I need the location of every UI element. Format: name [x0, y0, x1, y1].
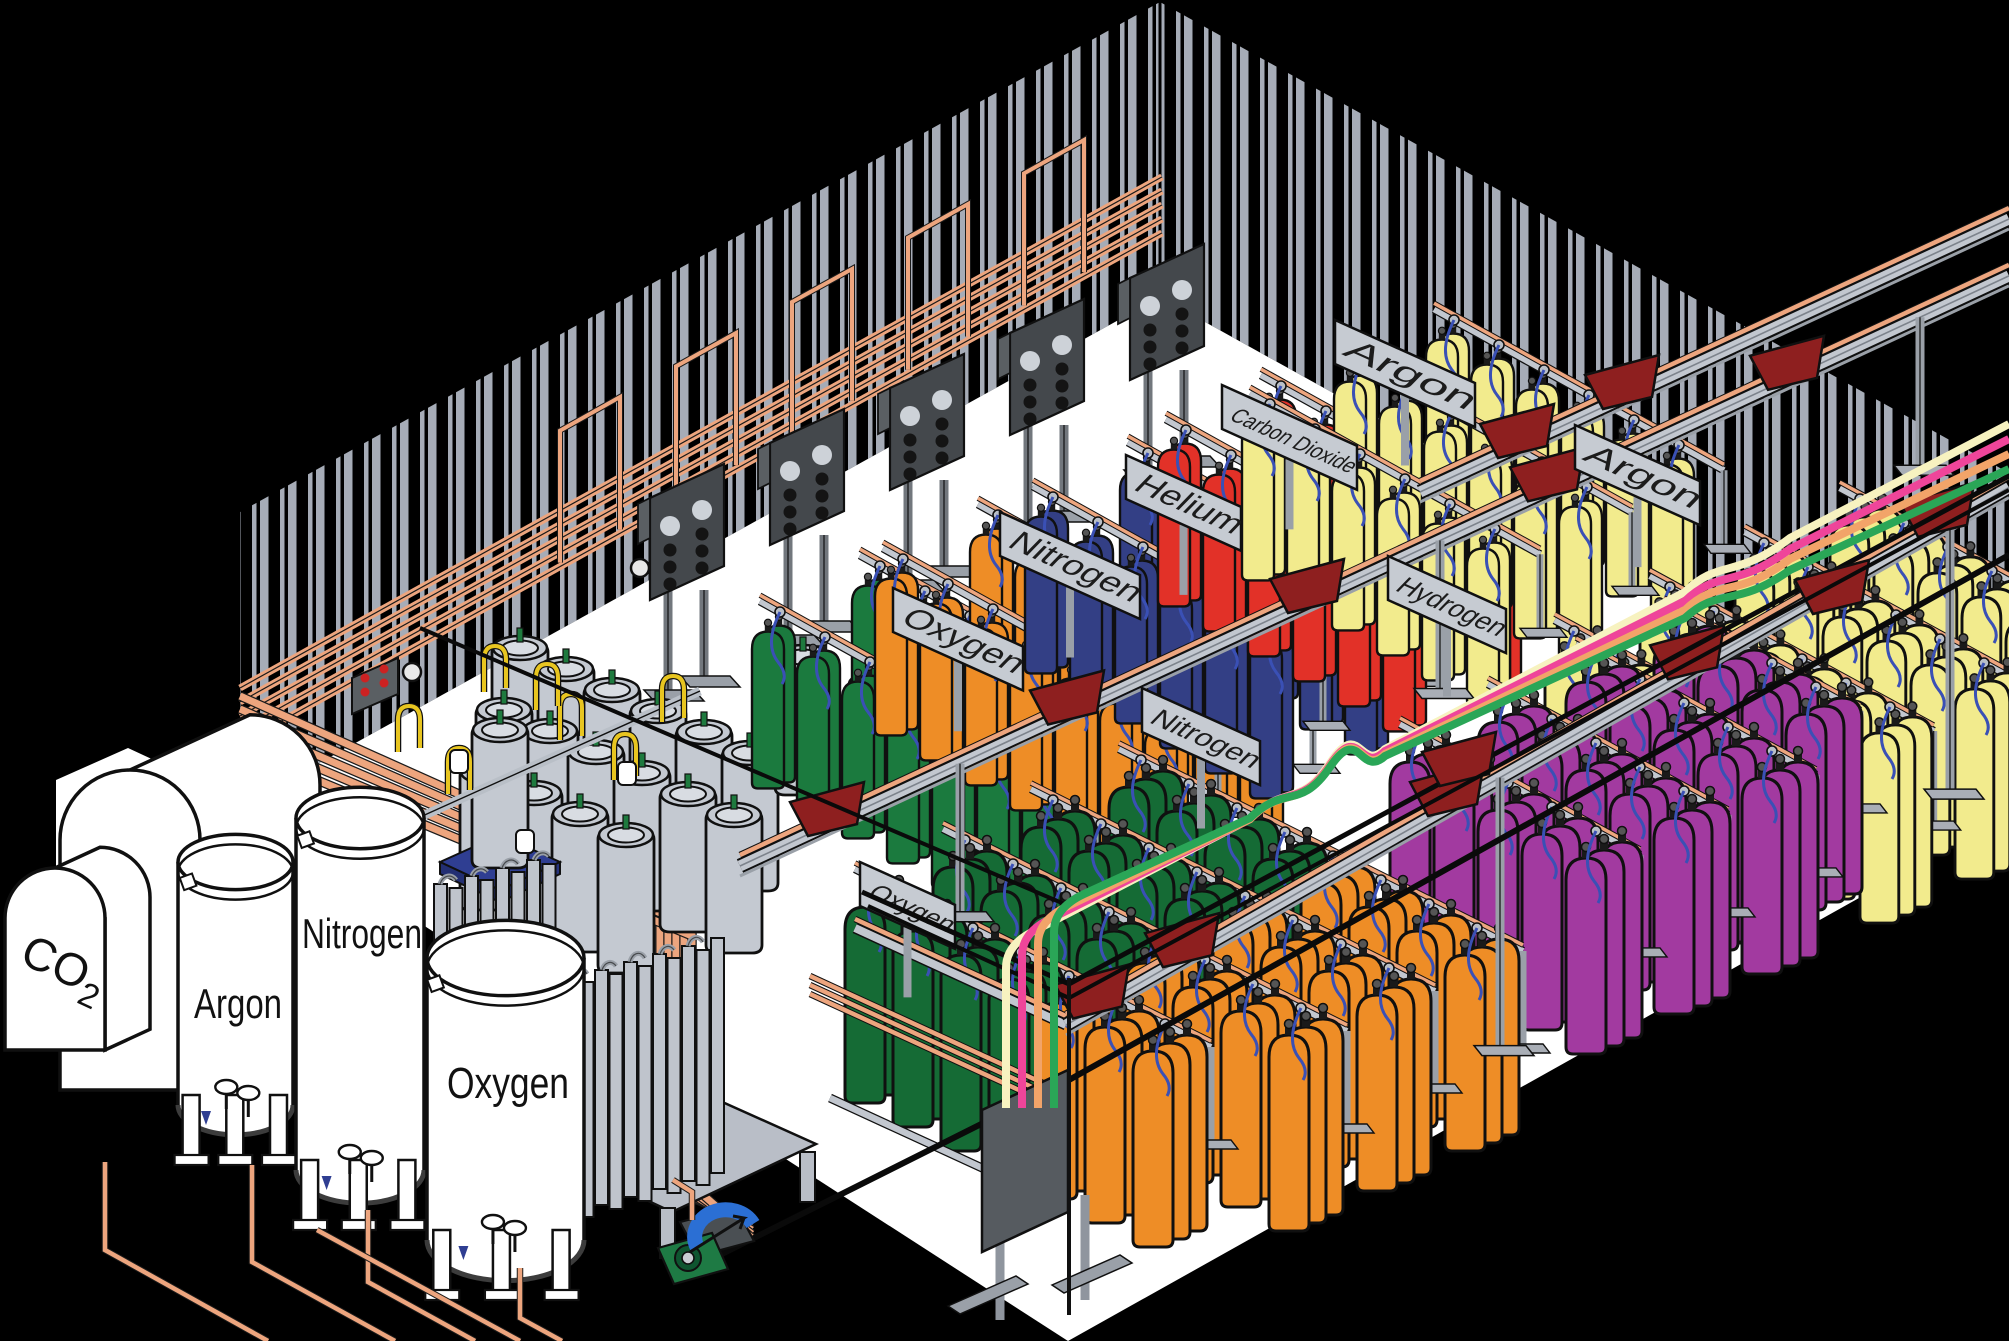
svg-text:Oxygen: Oxygen: [447, 1059, 569, 1108]
svg-text:Argon: Argon: [194, 980, 282, 1027]
svg-text:Nitrogen: Nitrogen: [302, 910, 422, 957]
